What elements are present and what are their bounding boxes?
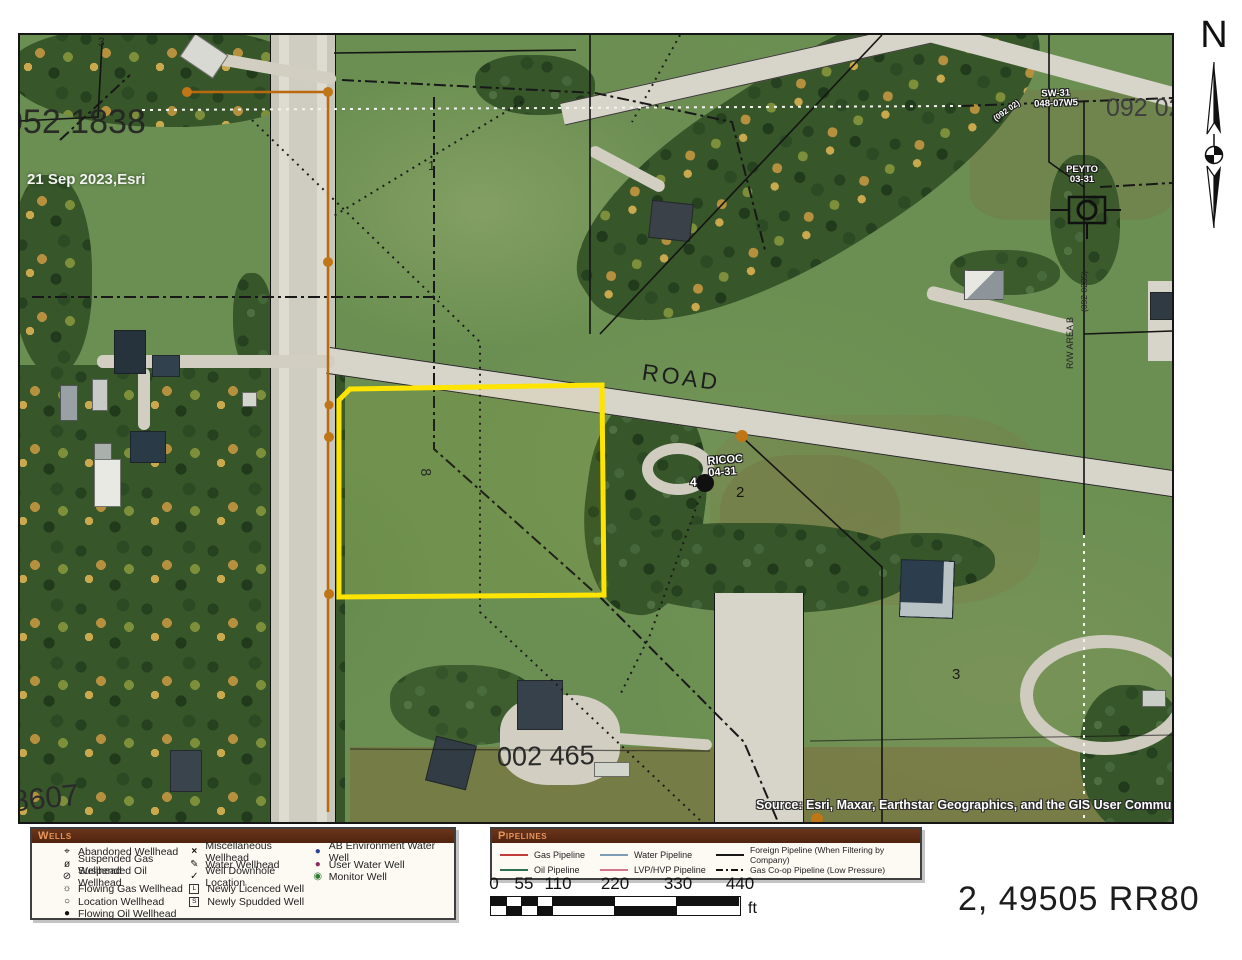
location-wellhead-icon: ○	[60, 897, 74, 907]
peyto-well-symbol	[1051, 197, 1121, 239]
suspended-oil-wellhead-icon: ⊘	[60, 872, 74, 882]
legend-item-label: Flowing Oil Wellhead	[78, 908, 176, 920]
legend-item-label: Oil Pipeline	[534, 865, 580, 875]
oil-pipeline-line	[500, 869, 528, 871]
ab-environment-water-well-icon: ●	[311, 847, 325, 857]
rw-plan-label: (092 0235)	[1080, 271, 1089, 312]
scale-tick: 0	[489, 874, 498, 894]
scale-tick: 330	[664, 874, 692, 894]
legend-item: SNewly Spudded Well	[187, 896, 310, 908]
plan-number-092-02: 092 02	[1106, 95, 1174, 121]
legend-item: ×Miscellaneous Wellhead	[187, 846, 310, 858]
well-label-sw31-line2: 048-07W5	[1034, 97, 1078, 110]
well-downhole-location-icon: ✓	[187, 872, 201, 882]
newly-licenced-well-icon: L	[189, 884, 199, 894]
parcel-number-3: 3	[952, 667, 960, 683]
attribution-text: Source: Esri, Maxar, Earthstar Geographi…	[756, 799, 1174, 812]
pipelines-legend-title: Pipelines	[492, 829, 920, 843]
legend-item-label: User Water Well	[329, 859, 405, 871]
miscellaneous-wellhead-icon: ×	[187, 847, 201, 857]
imagery-date: 21 Sep 2023,Esri	[27, 172, 145, 188]
gas-pipeline-line	[500, 854, 528, 856]
pipelines-legend-panel: Pipelines Gas Pipeline Oil Pipeline Wate…	[490, 827, 922, 880]
well-label-ricoc-line2: 04-31	[708, 465, 737, 479]
plan-number-top-left: 052 1838	[18, 105, 146, 141]
lvp-hvp-pipeline-line	[600, 869, 628, 871]
well-label-peyto-line2: 03-31	[1070, 174, 1094, 185]
well-label-peyto: PEYTO 03-31	[1066, 165, 1098, 185]
legend-item: ✓Well Downhole Location	[187, 871, 310, 883]
legend-item: ●AB Environment Water Well	[311, 846, 450, 858]
wells-legend-panel: Wells ⌖Abandoned Wellhead øSuspended Gas…	[30, 827, 456, 920]
scale-tick: 440	[726, 874, 754, 894]
parcel-number-8: 8	[418, 468, 433, 477]
foreign-pipeline-line	[716, 854, 744, 856]
plan-number-002-465: 002 465	[497, 741, 595, 771]
well-label-ricoc: RICOC 04-31	[707, 454, 744, 480]
well-number-4: 4	[690, 476, 697, 489]
well-label-sw31: SW-31 048-07W5	[1034, 88, 1079, 109]
map-canvas: 3 052 1838 21 Sep 2023,Esri 1 SW-31 048-…	[18, 33, 1174, 824]
user-water-well-icon: ●	[311, 860, 325, 870]
water-pipeline-line	[600, 854, 628, 856]
scale-tick: 110	[544, 874, 571, 894]
north-arrow-icon	[1202, 60, 1226, 230]
scale-tick: 55	[515, 874, 534, 894]
legend-item: ●Flowing Oil Wellhead	[60, 908, 187, 920]
legend-item: ◉Monitor Well	[311, 871, 450, 883]
suspended-gas-wellhead-icon: ø	[60, 860, 74, 870]
field-boundary-lines	[350, 735, 1172, 751]
legend-item: ○Location Wellhead	[60, 896, 187, 908]
legend-item: Water Pipeline	[600, 847, 716, 862]
water-wellhead-icon: ✎	[187, 860, 201, 870]
flowing-gas-wellhead-icon: ☼	[60, 884, 74, 894]
legend-item-label: Newly Licenced Well	[207, 883, 304, 895]
white-dotted-lines	[142, 106, 1084, 822]
legend-item: ⊘Suspended Oil Wellhead	[60, 871, 187, 883]
scale-bar-graphic	[490, 896, 741, 916]
legend-item: ●User Water Well	[311, 858, 450, 870]
legend-item-label: Gas Pipeline	[534, 850, 585, 860]
legend-item: Foreign Pipeline (When Filtering by Comp…	[716, 847, 916, 862]
scale-tick-labels: 0 55 110 220 330 440	[490, 874, 790, 894]
rw-area-b-label: R/W AREA B	[1066, 317, 1075, 369]
plan-number-8607: 8607	[18, 780, 80, 818]
parcel-number-3-top: 3	[98, 36, 105, 49]
parcel-number-2: 2	[736, 485, 744, 501]
legend-item-label: Gas Co-op Pipeline (Low Pressure)	[750, 865, 885, 875]
legend-item-label: Monitor Well	[329, 871, 387, 883]
monitor-well-icon: ◉	[311, 872, 325, 882]
legend-item-label: LVP/HVP Pipeline	[634, 865, 706, 875]
north-arrow: N	[1186, 14, 1242, 224]
flowing-oil-wellhead-icon: ●	[60, 909, 74, 919]
gas-coop-pipeline-line	[716, 869, 744, 871]
highlighted-parcel	[339, 385, 604, 597]
map-linework	[20, 35, 1172, 822]
north-label: N	[1186, 14, 1242, 57]
scale-unit-label: ft	[748, 900, 757, 918]
legend-item: ☼Flowing Gas Wellhead	[60, 883, 187, 895]
scale-tick: 220	[601, 874, 629, 894]
sheet-label: 2, 49505 RR80	[958, 880, 1200, 919]
legend-item-label: Flowing Gas Wellhead	[78, 883, 183, 895]
legend-item-label: Location Wellhead	[78, 896, 164, 908]
legend-item-label: Newly Spudded Well	[207, 896, 304, 908]
legend-item-label: Water Pipeline	[634, 850, 692, 860]
legend-item: Gas Pipeline	[500, 847, 600, 862]
abandoned-wellhead-icon: ⌖	[60, 847, 74, 857]
legend-item: LNewly Licenced Well	[187, 883, 310, 895]
scale-bar: 0 55 110 220 330 440 ft	[490, 874, 790, 926]
parcel-number-1: 1	[428, 159, 435, 173]
newly-spudded-well-icon: S	[189, 897, 199, 907]
